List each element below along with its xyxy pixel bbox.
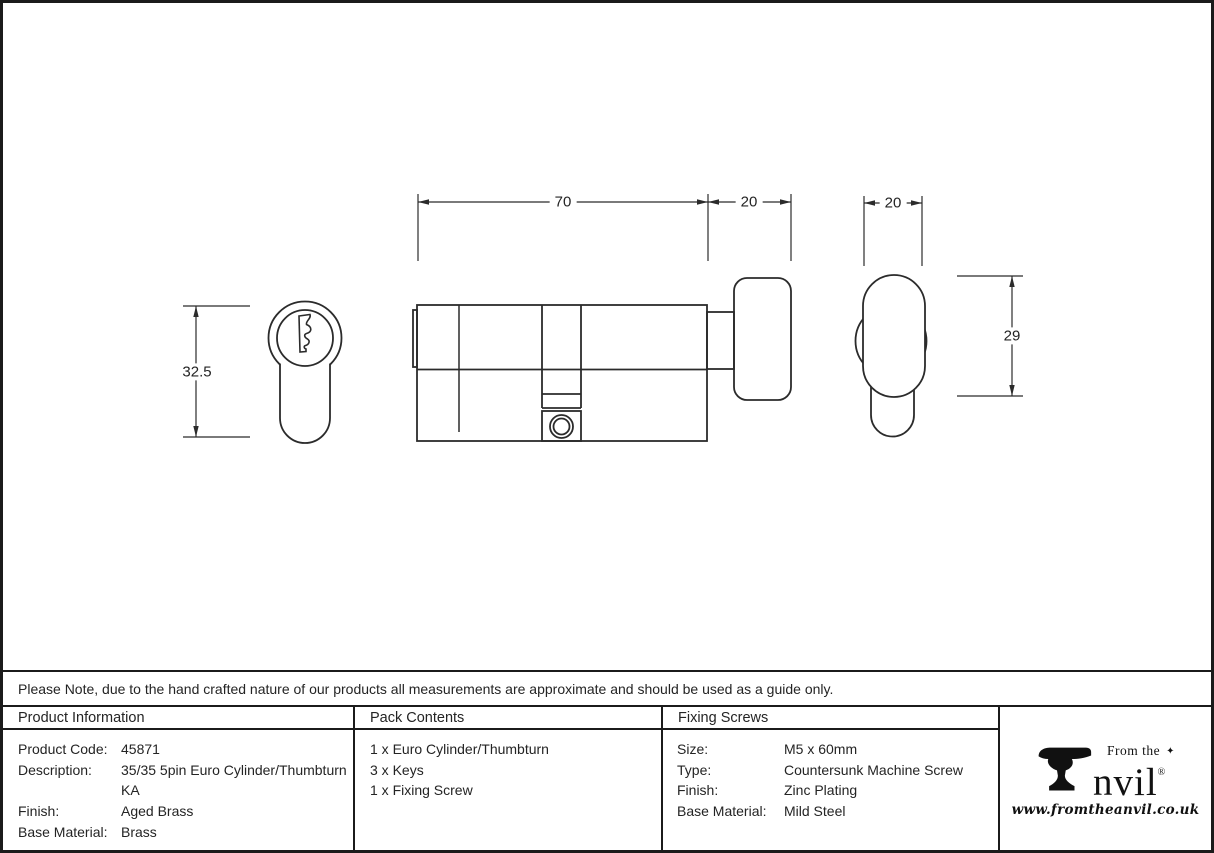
dim-label-front-height: 32.5: [177, 363, 216, 380]
measurement-disclaimer-note: Please Note, due to the hand crafted nat…: [3, 670, 1211, 705]
field-value: Zinc Plating: [784, 780, 998, 801]
keyhole-profile: [299, 315, 311, 353]
list-item: 1 x Euro Cylinder/Thumbturn: [370, 739, 661, 760]
table-row: Size: M5 x 60mm: [677, 739, 998, 760]
field-label: Product Code:: [18, 739, 121, 760]
side-view-cylinder: [413, 278, 791, 441]
table-header-row: Product Information Pack Contents Fixing…: [3, 705, 998, 730]
pack-contents-cell: 1 x Euro Cylinder/Thumbturn 3 x Keys 1 x…: [355, 730, 663, 850]
header-pack-contents: Pack Contents: [355, 707, 663, 728]
cylinder-body: [417, 305, 707, 441]
diamond-icon: ✦: [1166, 746, 1175, 757]
field-value: Brass: [121, 822, 353, 843]
table-row: Finish: Zinc Plating: [677, 780, 998, 801]
field-label: Finish:: [18, 801, 121, 822]
table-row: Type: Countersunk Machine Screw: [677, 760, 998, 781]
front-view-cylinder-face: [269, 302, 342, 444]
field-value: M5 x 60mm: [784, 739, 998, 760]
thumbturn-knob-side: [734, 278, 791, 400]
field-value: 45871: [121, 739, 353, 760]
fixing-screws-cell: Size: M5 x 60mm Type: Countersunk Machin…: [663, 730, 998, 850]
field-label: Type:: [677, 760, 784, 781]
front-body-fill: [280, 363, 330, 443]
thumbturn-knob-rear: [863, 275, 925, 397]
field-label: Size:: [677, 739, 784, 760]
table-row: Finish: Aged Brass: [18, 801, 353, 822]
field-label: Base Material:: [677, 801, 784, 822]
fixing-screw-hole-inner: [554, 419, 570, 435]
header-product-information: Product Information: [3, 707, 355, 728]
note-text: Please Note, due to the hand crafted nat…: [18, 681, 833, 697]
dim-label-knob-length: 20: [736, 193, 763, 210]
field-value: 35/35 5pin Euro Cylinder/Thumbturn KA: [121, 760, 353, 801]
brand-logo-cell: From the✦ nvil® www.fromtheanvil.co.uk: [998, 705, 1211, 850]
table-row: Base Material: Brass: [18, 822, 353, 843]
rear-view-thumbturn: [856, 275, 927, 437]
field-label: Finish:: [677, 780, 784, 801]
table-row: Base Material: Mild Steel: [677, 801, 998, 822]
logo-tagline: From the✦: [1107, 743, 1175, 759]
dim-label-body-length: 70: [550, 193, 577, 210]
logo-brand-text: nvil®: [1093, 758, 1175, 798]
field-value: Countersunk Machine Screw: [784, 760, 998, 781]
product-spec-sheet: 70 20 20 32.5 29 Please Note, due to the…: [0, 0, 1214, 853]
anvil-icon: [1036, 740, 1092, 792]
left-end-tab: [413, 310, 417, 367]
table-row: Product Code: 45871: [18, 739, 353, 760]
field-value: Aged Brass: [121, 801, 353, 822]
dim-label-knob-width: 20: [880, 194, 907, 211]
dim-label-rear-height: 29: [999, 327, 1026, 344]
registered-trademark-symbol: ®: [1158, 767, 1166, 778]
table-row: Description: 35/35 5pin Euro Cylinder/Th…: [18, 760, 353, 801]
list-item: 3 x Keys: [370, 760, 661, 781]
list-item: 1 x Fixing Screw: [370, 780, 661, 801]
table-body-row: Product Code: 45871 Description: 35/35 5…: [3, 730, 998, 850]
product-information-cell: Product Code: 45871 Description: 35/35 5…: [3, 730, 355, 850]
from-the-anvil-logo: From the✦ nvil®: [1036, 740, 1175, 798]
header-fixing-screws: Fixing Screws: [663, 707, 998, 728]
field-label: Base Material:: [18, 822, 121, 843]
thumbturn-neck: [707, 312, 734, 369]
field-label: Description:: [18, 760, 121, 801]
field-value: Mild Steel: [784, 801, 998, 822]
logo-website-url: www.fromtheanvil.co.uk: [1012, 802, 1200, 818]
